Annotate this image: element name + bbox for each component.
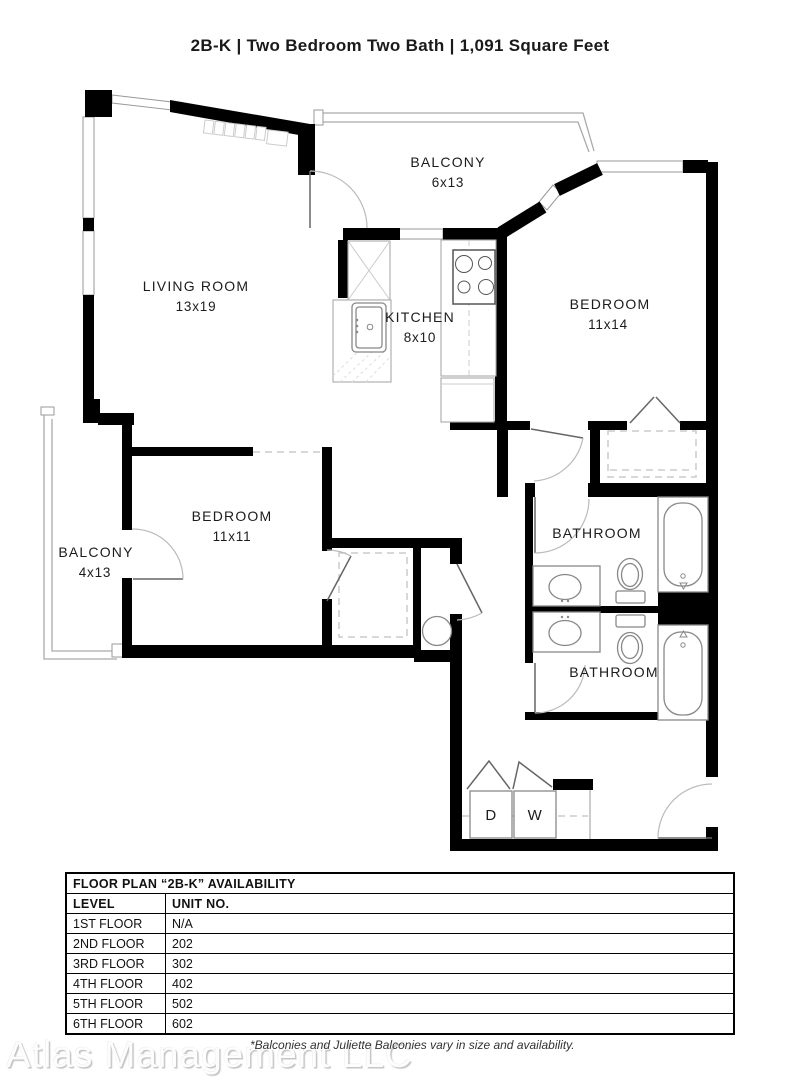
unit-cell: 302 (166, 954, 735, 974)
column-header-unit: UNIT NO. (166, 894, 735, 914)
balcony-top-door (310, 171, 367, 228)
washer-label: W (528, 807, 543, 824)
table-row: 4TH FLOOR402 (66, 974, 734, 994)
stove (453, 250, 495, 304)
laundry-bifold-doors (467, 761, 552, 789)
living-room-window-lower (83, 231, 94, 295)
table-title: FLOOR PLAN “2B-K” AVAILABILITY (66, 873, 734, 894)
kitchen-window (399, 229, 443, 239)
balcony-left-dims: 4x13 (79, 565, 111, 580)
balcony-top-railing (314, 110, 594, 152)
kitchen-label: KITCHEN (385, 309, 455, 325)
bathroom1-fixtures (533, 497, 708, 606)
bedroom2-label: BEDROOM (192, 508, 273, 524)
bathroom2-label: BATHROOM (569, 664, 658, 680)
unit-cell: N/A (166, 914, 735, 934)
bedroom2-closet-dashed (339, 553, 407, 637)
kitchen-sink (352, 303, 386, 352)
table-title-row: FLOOR PLAN “2B-K” AVAILABILITY (66, 873, 734, 894)
unit-cell: 502 (166, 994, 735, 1014)
utility-closet-door (457, 564, 482, 620)
living-room-label: LIVING ROOM (143, 278, 250, 294)
level-cell: 3RD FLOOR (66, 954, 166, 974)
water-heater (423, 617, 452, 646)
level-cell: 5TH FLOOR (66, 994, 166, 1014)
entry-door (658, 784, 712, 838)
table-row: 3RD FLOOR302 (66, 954, 734, 974)
availability-table: FLOOR PLAN “2B-K” AVAILABILITY LEVEL UNI… (65, 872, 735, 1035)
unit-cell: 202 (166, 934, 735, 954)
table-header-row: LEVEL UNIT NO. (66, 894, 734, 914)
balcony-footnote: *Balconies and Juliette Balconies vary i… (250, 1038, 575, 1052)
bathtub (658, 625, 708, 720)
level-cell: 2ND FLOOR (66, 934, 166, 954)
bathtub (658, 497, 708, 592)
dishwasher (441, 378, 494, 422)
toilet (616, 615, 645, 664)
kitchen-dims: 8x10 (404, 330, 436, 345)
balcony-top-label: BALCONY (410, 154, 485, 170)
dryer-unit: D (470, 791, 512, 838)
bedroom1-window (597, 161, 683, 172)
unit-cell: 402 (166, 974, 735, 994)
bathroom1-label: BATHROOM (552, 525, 641, 541)
floor-plan-page: { "title": "2B-K | Two Bedroom Two Bath … (0, 0, 800, 1080)
level-cell: 6TH FLOOR (66, 1014, 166, 1035)
living-room-dims: 13x19 (176, 299, 217, 314)
balcony-left-label: BALCONY (58, 544, 133, 560)
living-room-diagonal-window (112, 95, 172, 110)
floor-plan-drawing: D W BALCONY 6x13 LIVING ROOM 13x19 KITCH… (0, 0, 800, 860)
table-row: 2ND FLOOR202 (66, 934, 734, 954)
bedroom2-dims: 11x11 (213, 529, 252, 544)
bedroom1-dims: 11x14 (588, 317, 628, 332)
balcony-top-dims: 6x13 (432, 175, 464, 190)
table-row: 6TH FLOOR602 (66, 1014, 734, 1035)
washer-unit: W (514, 791, 556, 838)
balcony-left-railing (41, 407, 126, 659)
table-row: 5TH FLOOR502 (66, 994, 734, 1014)
level-cell: 1ST FLOOR (66, 914, 166, 934)
hall-door (531, 429, 583, 481)
bedroom1-label: BEDROOM (570, 296, 651, 312)
column-header-level: LEVEL (66, 894, 166, 914)
toilet (616, 559, 645, 604)
table-row: 1ST FLOORN/A (66, 914, 734, 934)
sink-vanity (533, 612, 600, 652)
unit-cell: 602 (166, 1014, 735, 1035)
bedroom2-balcony-door (132, 529, 183, 579)
dryer-label: D (485, 807, 496, 824)
sink-vanity (533, 566, 600, 606)
bedroom1-closet-doors (630, 397, 680, 423)
living-room-window-upper (83, 117, 94, 218)
level-cell: 4TH FLOOR (66, 974, 166, 994)
